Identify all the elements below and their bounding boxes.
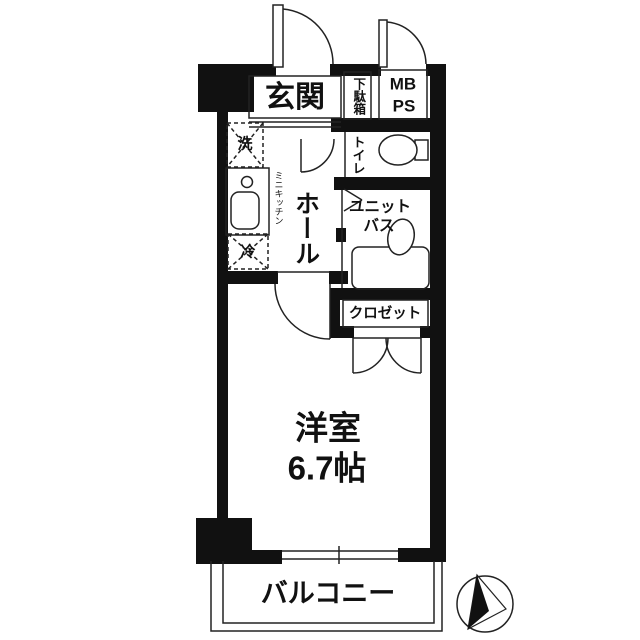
closet-double-doors bbox=[353, 338, 421, 373]
washer-label: 洗 bbox=[237, 137, 252, 152]
toilet-label: トイレ bbox=[352, 136, 365, 175]
closet-label: クロゼット bbox=[349, 307, 422, 322]
fridge-label: 冷 bbox=[240, 245, 255, 260]
western-room-size: 6.7帖 bbox=[288, 452, 367, 485]
hall-label: ホール bbox=[293, 191, 318, 266]
western-room-name: 洋室 bbox=[295, 412, 361, 445]
toilet-icon bbox=[379, 135, 428, 165]
hall-room-door-arc bbox=[275, 272, 330, 339]
sliding-window bbox=[282, 546, 398, 564]
burner-icon bbox=[242, 177, 253, 188]
mini-kitchen-label: ミニキッチン bbox=[274, 171, 283, 225]
bathtub-icon bbox=[352, 247, 429, 289]
toilet-door-arc bbox=[301, 139, 334, 172]
meter-box-label-mb: MB bbox=[390, 76, 416, 93]
meter-box-door-arc bbox=[379, 20, 426, 67]
meter-box-label-ps: PS bbox=[393, 98, 416, 115]
balcony-label: バルコニー bbox=[261, 581, 395, 608]
entrance-label: 玄関 bbox=[265, 83, 325, 113]
north-arrow-icon bbox=[457, 575, 513, 632]
mini-kitchen-counter bbox=[226, 168, 269, 235]
entrance-door-arc bbox=[273, 5, 333, 67]
unit-bath-label-2: バス bbox=[363, 218, 394, 234]
shoe-box-label: 下駄箱 bbox=[352, 77, 365, 115]
floorplan: 玄関 下駄箱 MB PS トイレ ホール ミニキッチン 洗 冷 ユニット バス … bbox=[0, 0, 640, 640]
unit-bath-label-1: ユニット bbox=[349, 199, 411, 215]
